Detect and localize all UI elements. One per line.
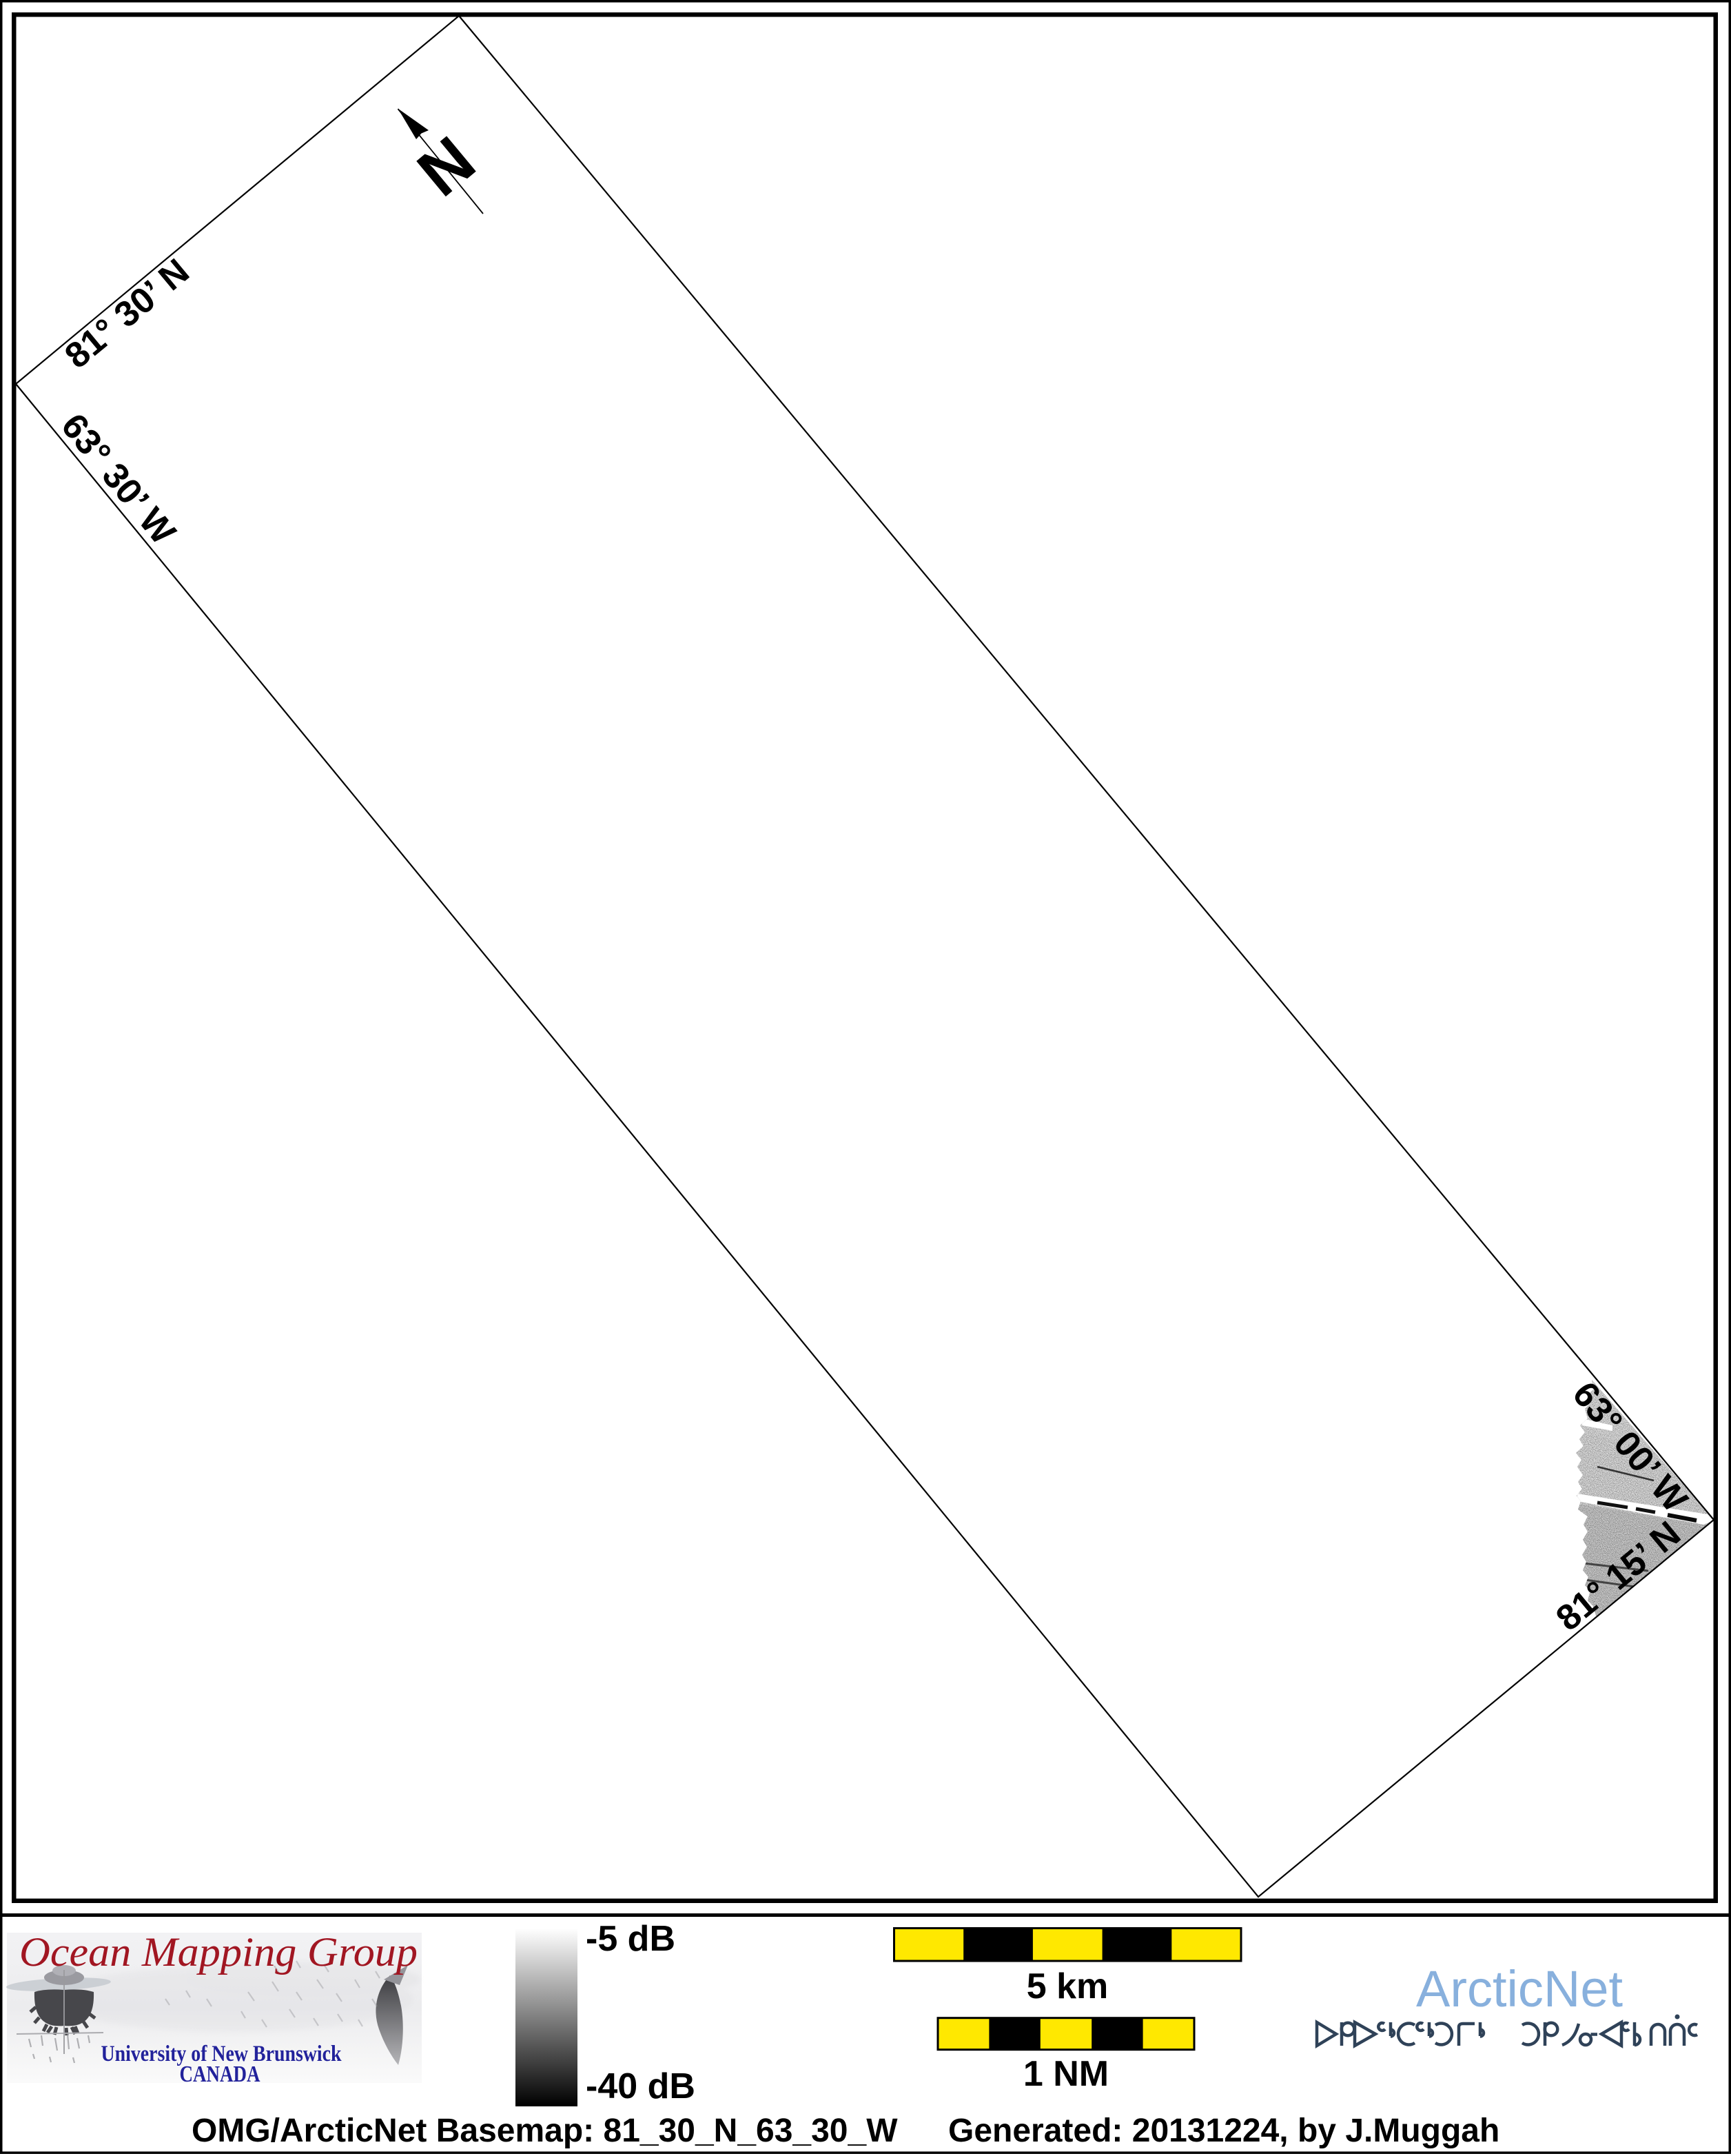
svg-text:CANADA: CANADA (180, 2062, 260, 2087)
svg-text:-40 dB: -40 dB (586, 2066, 695, 2106)
svg-text:OMG/ArcticNet Basemap: 81_30_N: OMG/ArcticNet Basemap: 81_30_N_63_30_W (192, 2113, 898, 2149)
svg-text:ArcticNet: ArcticNet (1416, 1960, 1623, 2017)
svg-text:5 km: 5 km (1027, 1966, 1109, 2006)
svg-text:1 NM: 1 NM (1023, 2054, 1109, 2094)
svg-text:-5 dB: -5 dB (586, 1919, 675, 1959)
svg-text:Generated: 20131224, by J.Mugg: Generated: 20131224, by J.Muggah (948, 2113, 1499, 2149)
svg-text:Ocean Mapping Group: Ocean Mapping Group (19, 1929, 418, 1975)
